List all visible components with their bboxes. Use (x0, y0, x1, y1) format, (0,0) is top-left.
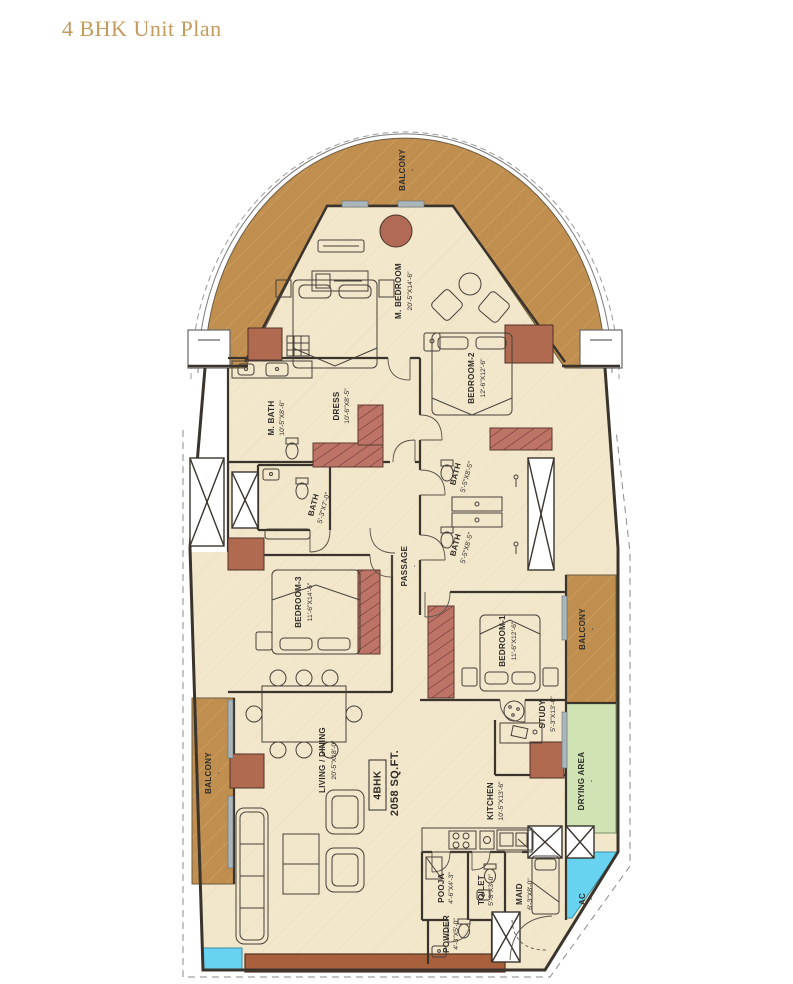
svg-text:10'-6"X8'-5": 10'-6"X8'-5" (344, 388, 351, 424)
label-bedroom1: BEDROOM-1 (498, 615, 507, 667)
svg-text:11'-6"X14'-6": 11'-6"X14'-6" (307, 582, 314, 621)
label-m-bedroom: M. BEDROOM (394, 263, 403, 319)
label-m-bath: M. BATH (267, 401, 276, 436)
svg-text:11'-6"X12'-6": 11'-6"X12'-6" (511, 621, 518, 660)
wardrobe-dress-v (358, 405, 383, 445)
label-passage: PASSAGE (400, 545, 409, 586)
shaft-left-outer (190, 458, 224, 546)
label-kitchen: KITCHEN (486, 782, 495, 820)
wardrobe-dress-h (313, 443, 383, 467)
svg-text:6'-3"X8'-0": 6'-3"X8'-0" (527, 878, 534, 910)
label-ac: AC (578, 893, 587, 905)
cabinet-passage (228, 538, 264, 570)
wardrobe-bedroom2 (490, 428, 552, 450)
svg-text:-: - (215, 772, 222, 774)
svg-text:10'-5"X8'-6": 10'-5"X8'-6" (279, 400, 286, 436)
window-living-2 (228, 796, 233, 868)
window-bedroom-north-1 (342, 201, 368, 207)
svg-text:-: - (588, 898, 595, 900)
window-bedroom-north-2 (398, 201, 424, 207)
tv-unit (230, 754, 264, 788)
svg-text:12'-6"X12'-6": 12'-6"X12'-6" (480, 358, 487, 398)
label-maid: MAID (515, 883, 524, 905)
floor-plan: BALCONY - M. BEDROOM 20'-5"X14'-6" BEDRO… (0, 0, 793, 984)
svg-text:-: - (588, 780, 595, 782)
label-powder: POWDER (442, 915, 451, 953)
balcony-right (566, 575, 616, 703)
label-pooja: POOJA (437, 873, 446, 903)
floor-plan-page: 4 BHK Unit Plan (0, 0, 793, 984)
round-table (380, 215, 412, 247)
kitchen-duct-2 (566, 826, 594, 858)
cabinet-mbath (248, 328, 282, 360)
ac-zone-bottom-left (202, 948, 242, 970)
label-study: STUDY (538, 699, 547, 728)
window-right-2 (562, 712, 567, 768)
label-balcony-right: BALCONY (578, 608, 587, 650)
svg-text:5'-3"X3'-0": 5'-3"X3'-0" (488, 874, 495, 906)
shaft-left-bath (232, 472, 258, 528)
cabinet-study (530, 742, 564, 778)
label-drying-area: DRYING AREA (577, 752, 586, 811)
svg-text:20'-5"X14'-6": 20'-5"X14'-6" (407, 271, 414, 311)
wardrobe-bedroom1 (428, 606, 454, 698)
label-bedroom2: BEDROOM-2 (467, 352, 476, 404)
unit-type: 4BHK (373, 770, 384, 800)
svg-text:10'-5"X13'-6": 10'-5"X13'-6" (498, 781, 505, 821)
label-balcony-top: BALCONY (398, 149, 407, 191)
label-living-dining: LIVING / DINING (318, 727, 327, 793)
svg-text:4'-6"X4'-3": 4'-6"X4'-3" (448, 872, 455, 904)
wardrobe-bedroom3 (358, 570, 380, 654)
powder-shaft (492, 912, 520, 962)
svg-text:4'-3"X5'-0": 4'-3"X5'-0" (453, 918, 460, 950)
label-toilet: TOILET (477, 875, 486, 905)
label-balcony-left: BALCONY (204, 752, 213, 794)
svg-text:20'-5"X18'-0": 20'-5"X18'-0" (331, 740, 338, 780)
label-bedroom3: BEDROOM-3 (294, 576, 303, 628)
svg-text:-: - (589, 628, 596, 630)
svg-text:-: - (409, 169, 416, 171)
lift-shaft (528, 458, 554, 570)
page-title: 4 BHK Unit Plan (62, 16, 222, 42)
svg-text:5'-3"X13'-6": 5'-3"X13'-6" (550, 696, 557, 732)
svg-text:-: - (411, 565, 418, 567)
unit-area: 2058 SQ.FT. (389, 750, 401, 816)
window-living-1 (228, 700, 233, 758)
label-dress: DRESS (332, 391, 341, 420)
window-right-1 (562, 596, 567, 640)
drying-area (566, 703, 616, 833)
